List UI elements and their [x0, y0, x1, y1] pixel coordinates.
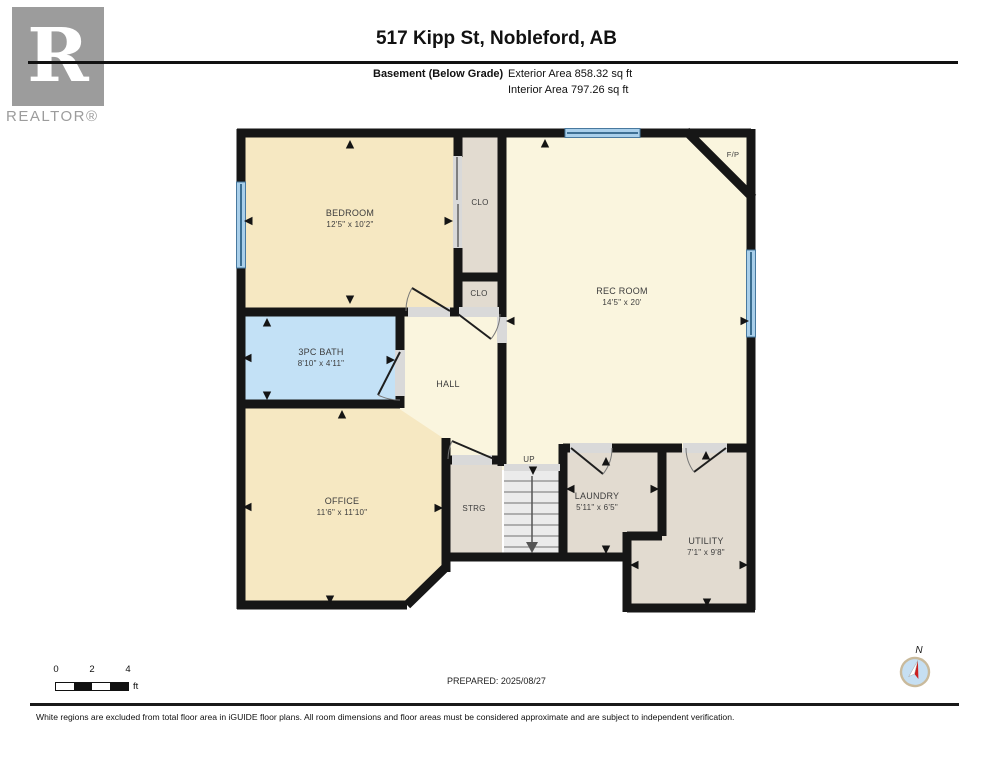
room-fills: [241, 133, 751, 608]
room-label-rec-room: REC ROOM 14'5" x 20': [596, 286, 648, 308]
room-name: OFFICE: [325, 496, 360, 506]
scale-tick-4: 4: [121, 664, 135, 675]
room-label-laundry: LAUNDRY 5'11" x 6'5": [575, 491, 620, 513]
room-label-fireplace: F/P: [727, 150, 739, 160]
compass-north-label: N: [915, 645, 923, 656]
room-label-hall: HALL: [436, 379, 460, 391]
room-dims: 12'5" x 10'2": [326, 220, 374, 230]
prepared-date: PREPARED: 2025/08/27: [0, 676, 993, 686]
floor-plan-page: R REALTOR® 517 Kipp St, Nobleford, AB Ba…: [0, 0, 993, 768]
room-label-bedroom: BEDROOM 12'5" x 10'2": [326, 208, 374, 230]
room-name: CLO: [471, 198, 488, 207]
room-name: CLO: [470, 289, 487, 298]
room-dims: 14'5" x 20': [596, 298, 648, 308]
room-name: F/P: [727, 150, 739, 159]
disclaimer-text: White regions are excluded from total fl…: [36, 712, 734, 722]
room-dims: 8'10" x 4'11": [298, 359, 345, 369]
room-name: UP: [523, 455, 535, 464]
room-label-closet-top: CLO: [471, 198, 488, 208]
footer-divider: [30, 703, 959, 706]
floor-plan-drawing: [0, 0, 993, 768]
room-label-office: OFFICE 11'6" x 11'10": [317, 496, 368, 518]
room-dims: 11'6" x 11'10": [317, 508, 368, 518]
room-label-closet-mid: CLO: [470, 289, 487, 299]
room-name: HALL: [436, 379, 460, 389]
scale-tick-2: 2: [85, 664, 99, 675]
room-name: STRG: [462, 504, 485, 513]
room-dims: 5'11" x 6'5": [575, 503, 620, 513]
stairs-up-label: UP: [523, 455, 535, 465]
room-name: UTILITY: [688, 536, 723, 546]
room-label-storage: STRG: [462, 504, 485, 514]
room-label-utility: UTILITY 7'1" x 9'8": [687, 536, 725, 558]
room-label-bath: 3PC BATH 8'10" x 4'11": [298, 347, 345, 369]
room-name: REC ROOM: [596, 286, 648, 296]
room-name: BEDROOM: [326, 208, 374, 218]
scale-tick-0: 0: [49, 664, 63, 675]
room-dims: 7'1" x 9'8": [687, 548, 725, 558]
compass-icon: N: [894, 641, 938, 695]
room-name: LAUNDRY: [575, 491, 620, 501]
room-name: 3PC BATH: [298, 347, 343, 357]
